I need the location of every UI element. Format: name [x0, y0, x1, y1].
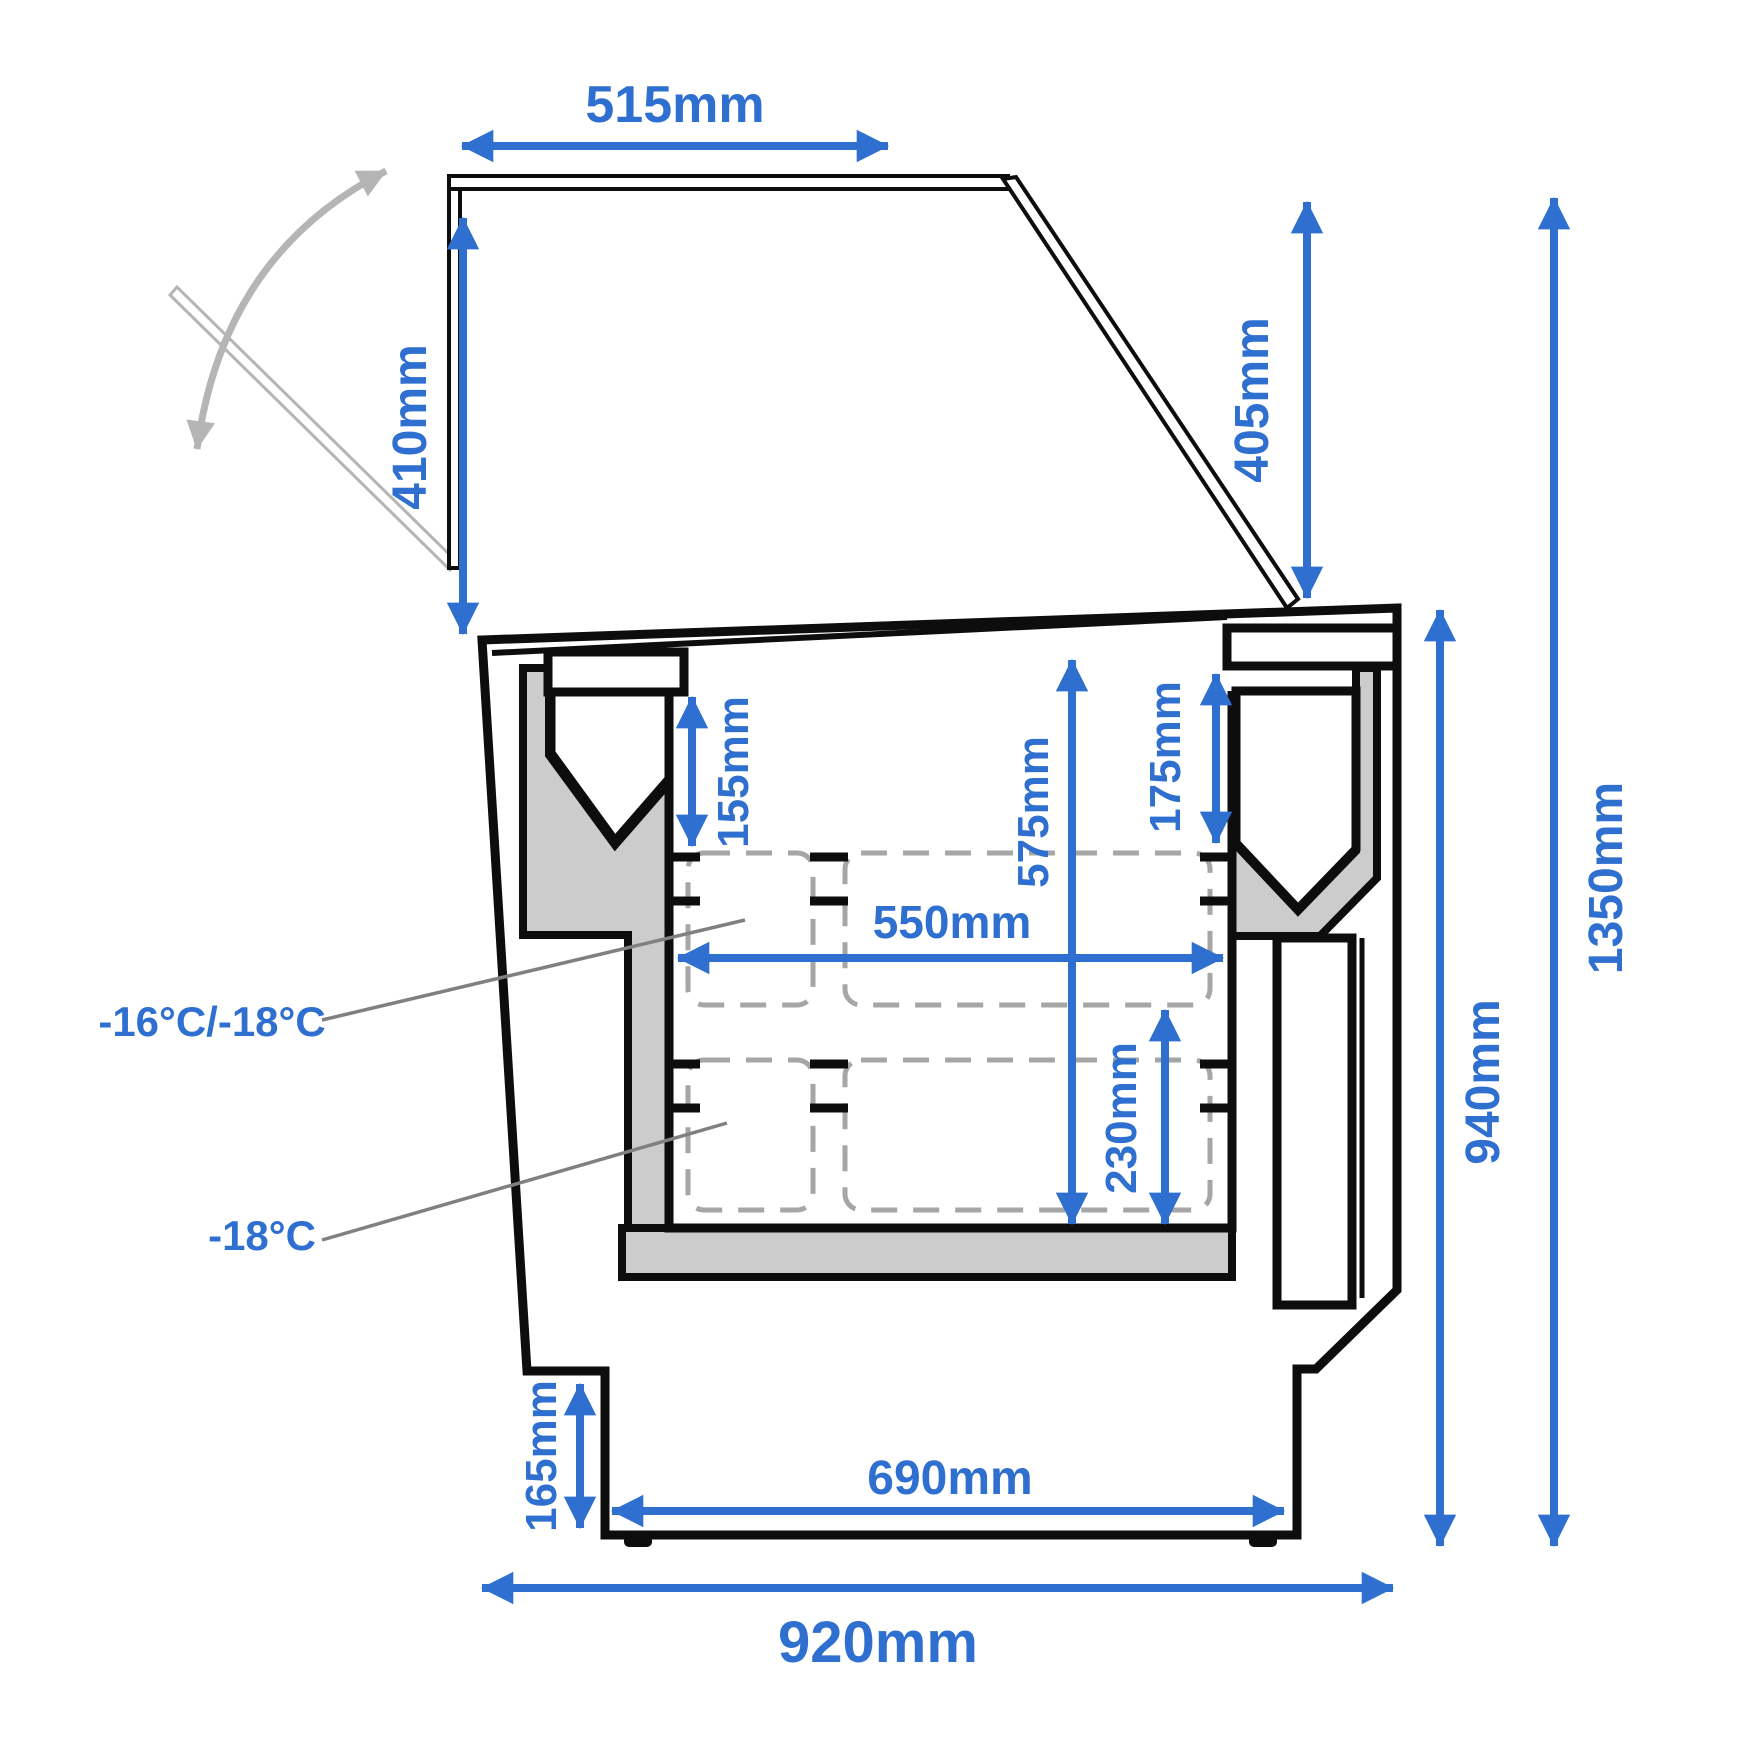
page-root: -16°C/-18°C -18°C 515mm 410mm 405mm 1350…	[0, 0, 1750, 1750]
dim-405-label: 405mm	[1226, 317, 1279, 482]
open-lid-glass-top	[449, 176, 1008, 189]
dim-410-label: 410mm	[384, 344, 437, 509]
dim-515-label: 515mm	[585, 76, 764, 134]
dim-550-label: 550mm	[873, 896, 1032, 948]
dim-575-label: 575mm	[1009, 736, 1058, 888]
dim-940-label: 940mm	[1457, 999, 1510, 1164]
temp-label-upper: -16°C/-18°C	[98, 998, 325, 1045]
dim-155-label: 155mm	[709, 696, 758, 848]
compressor-door	[1277, 938, 1352, 1305]
dim-165-label: 165mm	[517, 1380, 566, 1532]
temp-label-lower: -18°C	[208, 1212, 316, 1259]
freezer-dimension-diagram: -16°C/-18°C -18°C 515mm 410mm 405mm 1350…	[0, 0, 1750, 1750]
open-lid-glass-side	[449, 176, 460, 568]
dim-1350-label: 1350mm	[1580, 782, 1633, 974]
dim-690-label: 690mm	[867, 1452, 1032, 1505]
foot-left	[624, 1535, 652, 1547]
lid-rail-right	[1227, 628, 1397, 666]
lid-rail-left	[548, 652, 684, 692]
insulation-bottom	[622, 1228, 1232, 1277]
dim-920-label: 920mm	[778, 1610, 978, 1675]
dim-175-label: 175mm	[1141, 681, 1190, 833]
dim-230-label: 230mm	[1097, 1042, 1146, 1194]
foot-right	[1249, 1535, 1277, 1547]
